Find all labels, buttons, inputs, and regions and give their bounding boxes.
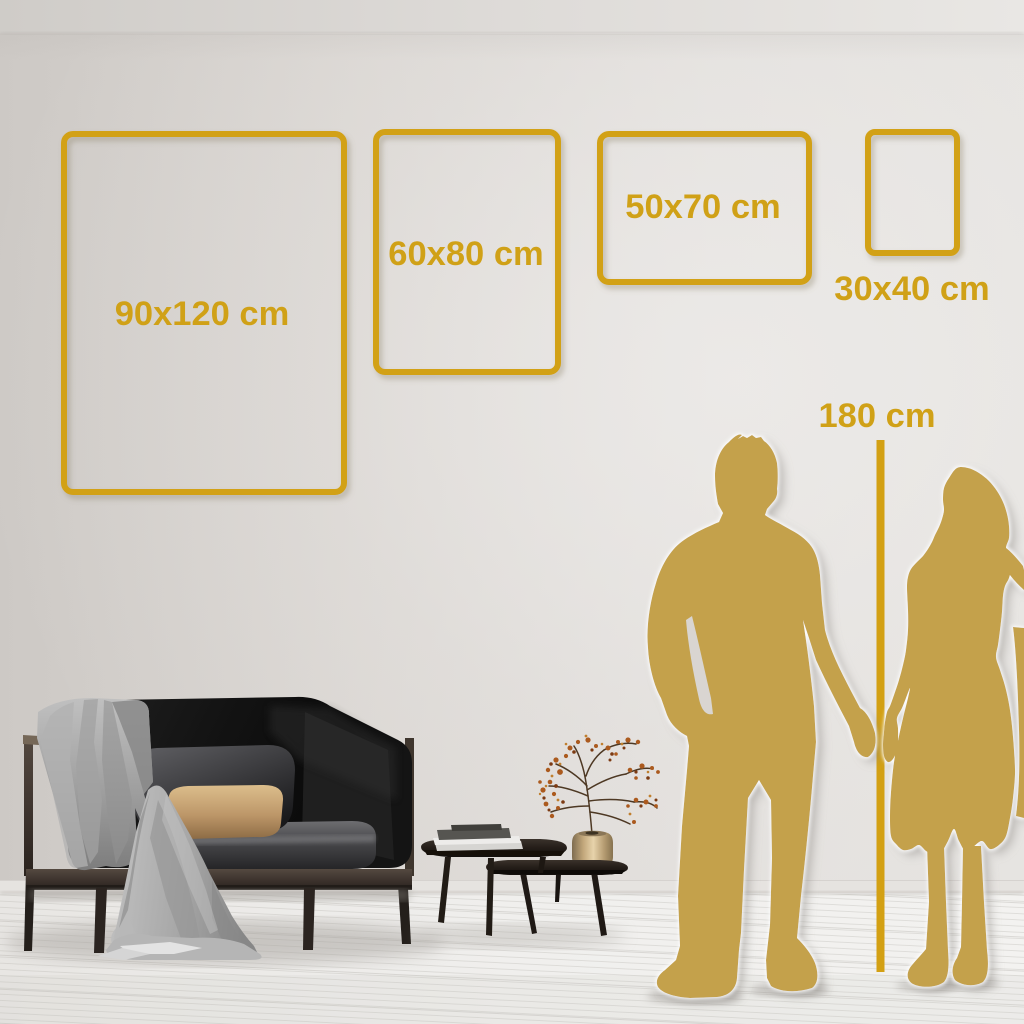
svg-text:60x80 cm: 60x80 cm	[388, 235, 543, 273]
svg-text:50x70 cm: 50x70 cm	[625, 188, 780, 226]
svg-text:30x40 cm: 30x40 cm	[834, 270, 989, 308]
svg-text:180 cm: 180 cm	[818, 397, 935, 435]
svg-text:90x120 cm: 90x120 cm	[115, 295, 290, 333]
